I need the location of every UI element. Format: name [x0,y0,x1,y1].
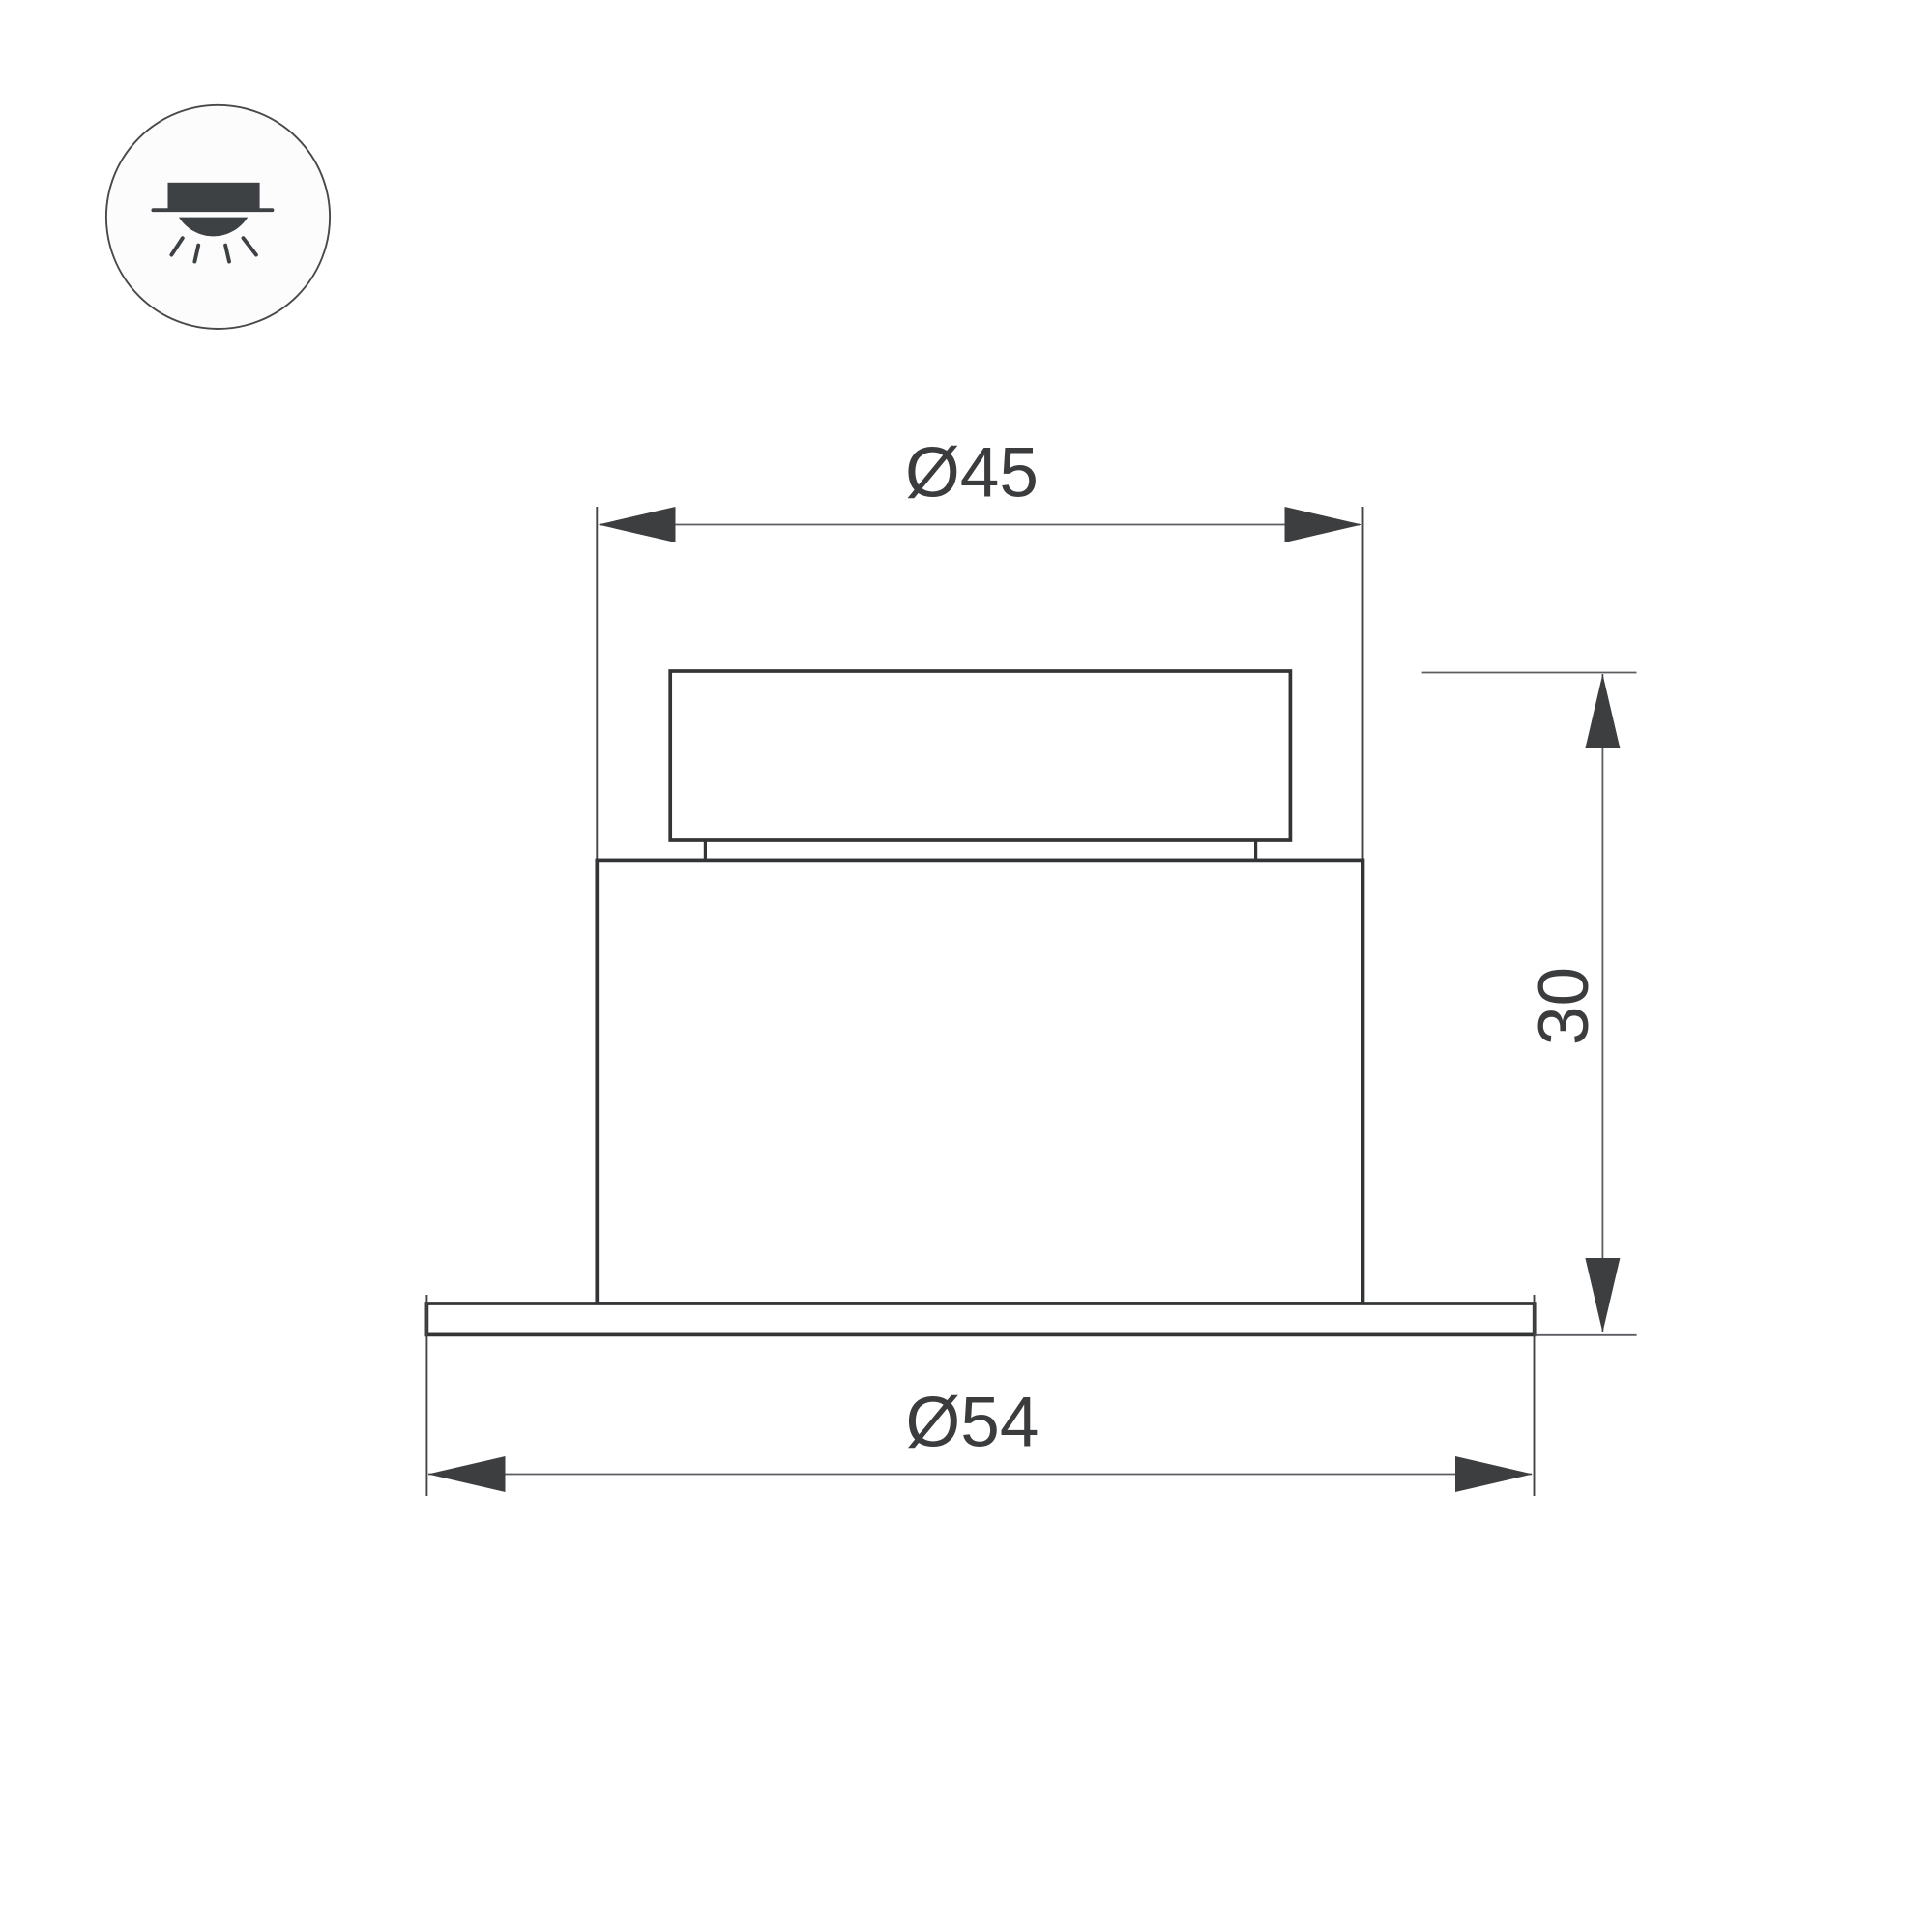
svg-text:Ø45: Ø45 [905,434,1039,512]
svg-text:Ø54: Ø54 [906,1384,1039,1462]
svg-text:30: 30 [1525,967,1603,1045]
